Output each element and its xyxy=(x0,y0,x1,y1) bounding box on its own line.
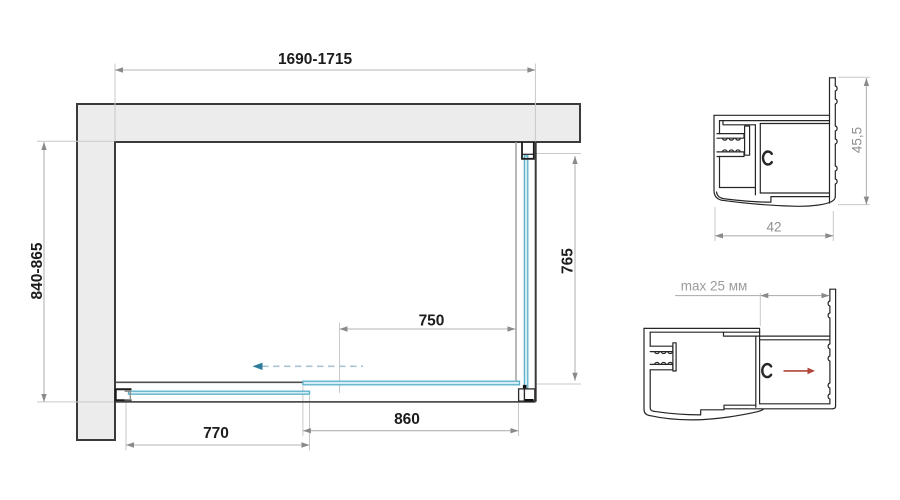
svg-text:42: 42 xyxy=(766,220,781,235)
svg-text:765: 765 xyxy=(560,248,577,274)
svg-text:750: 750 xyxy=(419,313,445,330)
svg-text:840-865: 840-865 xyxy=(29,242,46,299)
svg-text:45,5: 45,5 xyxy=(850,127,865,153)
svg-text:1690-1715: 1690-1715 xyxy=(278,51,353,68)
svg-text:770: 770 xyxy=(203,425,229,442)
svg-text:860: 860 xyxy=(394,411,420,428)
svg-text:max 25 мм: max 25 мм xyxy=(681,279,748,294)
